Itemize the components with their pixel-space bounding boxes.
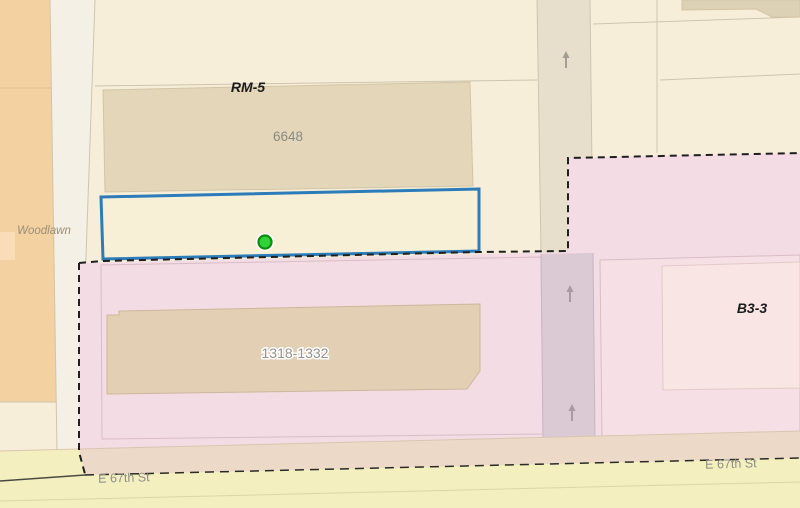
selected-parcel-outline[interactable] — [101, 189, 479, 259]
street-vertical-lower[interactable] — [541, 253, 595, 437]
zoning-map-viewport[interactable]: RM-5 B3-3 6648 1318-1332 Woodlawn E 67th… — [0, 0, 800, 508]
zone-label-rm5: RM-5 — [231, 79, 265, 95]
parcel-b3-3-right-inner[interactable] — [662, 262, 800, 390]
zoning-map-canvas[interactable]: RM-5 B3-3 6648 1318-1332 Woodlawn E 67th… — [0, 0, 800, 508]
street-label-woodlawn: Woodlawn — [17, 225, 71, 237]
building-label-6648: 6648 — [273, 129, 303, 144]
building-label-1318-1332: 1318-1332 — [262, 345, 329, 361]
street-label-e67th-left: E 67th St — [98, 470, 150, 486]
street-label-e67th-right: E 67th St — [705, 456, 757, 472]
selected-point-marker[interactable] — [259, 236, 272, 249]
parcel-orange-block[interactable] — [0, 0, 57, 402]
parcel-orange-inner — [0, 232, 15, 260]
zone-label-b3-3: B3-3 — [737, 300, 768, 316]
